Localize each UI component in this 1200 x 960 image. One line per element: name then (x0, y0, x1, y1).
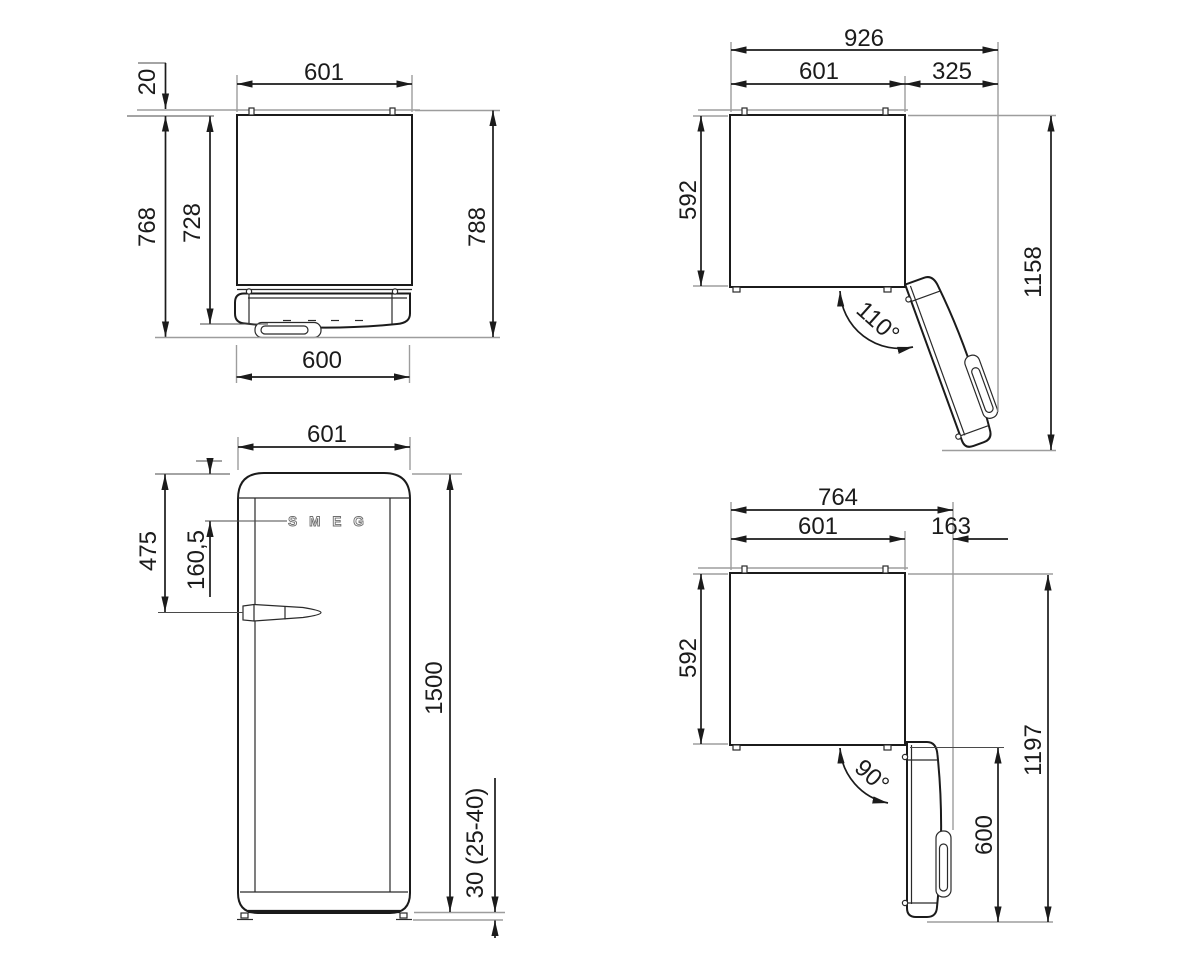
view-top-open-110: 110° 926 601 325 592 1158 (675, 25, 1056, 451)
dim-body-width: 601 (798, 513, 838, 540)
dim-handle-clearance: 163 (931, 513, 971, 540)
dim-rear-gap: 20 (134, 69, 161, 96)
dim-door-projection: 325 (932, 58, 972, 85)
door-top-closed (235, 289, 410, 338)
dim-top-width: 601 (304, 59, 344, 86)
dim-body-width: 601 (799, 58, 839, 85)
door-open-110 (901, 270, 1007, 451)
hinge-pin-icon (883, 108, 888, 115)
door-angle: 90° (849, 754, 894, 798)
dim-depth-total: 788 (464, 207, 491, 247)
foot-icon (241, 913, 248, 918)
hinge-pin-icon (390, 108, 395, 115)
door-angle: 110° (851, 296, 905, 348)
cabinet-top-outline (730, 115, 905, 287)
drawing-canvas: 601 20 768 728 788 600 110° 926 6 (0, 0, 1200, 960)
dim-handle-from-top: 475 (135, 531, 162, 571)
dim-height: 1500 (421, 661, 448, 714)
smeg-logo: SMEG (288, 514, 376, 529)
dim-depth-with-door: 768 (134, 207, 161, 247)
dim-depth: 592 (675, 180, 702, 220)
dim-total-width: 764 (818, 484, 858, 511)
fridge-front-outline (238, 473, 410, 913)
front-hinge-icon (884, 745, 891, 750)
cabinet-top-outline (237, 115, 412, 285)
dim-total-depth: 1158 (1020, 246, 1047, 298)
dim-total-width: 926 (844, 25, 884, 52)
dim-feet-height: 30 (25-40) (462, 788, 489, 899)
dim-door-width: 600 (302, 347, 342, 374)
dim-door-depth: 600 (971, 815, 998, 855)
view-top-open-90: 90° 764 601 163 592 1197 600 (675, 484, 1053, 922)
cabinet-top-outline (730, 573, 905, 745)
hinge-pin-icon (742, 566, 747, 573)
foot-icon (400, 913, 407, 918)
dim-depth-body: 728 (179, 203, 206, 243)
front-hinge-icon (733, 287, 740, 292)
view-front: SMEG 601 475 160,5 1500 30 (25-40) (135, 421, 505, 938)
front-hinge-icon (884, 287, 891, 292)
hinge-pin-icon (249, 108, 254, 115)
dim-total-depth: 1197 (1020, 724, 1047, 776)
hinge-pin-icon (742, 108, 747, 115)
dimension-diagram: 601 20 768 728 788 600 110° 926 6 (0, 0, 1200, 960)
front-hinge-icon (733, 745, 740, 750)
view-top-closed: 601 20 768 728 788 600 (127, 59, 500, 383)
dim-width: 601 (307, 421, 347, 448)
dim-depth: 592 (675, 638, 702, 678)
hinge-pin-icon (883, 566, 888, 573)
dim-logo-from-top: 160,5 (183, 530, 210, 590)
door-open-90 (902, 742, 951, 917)
